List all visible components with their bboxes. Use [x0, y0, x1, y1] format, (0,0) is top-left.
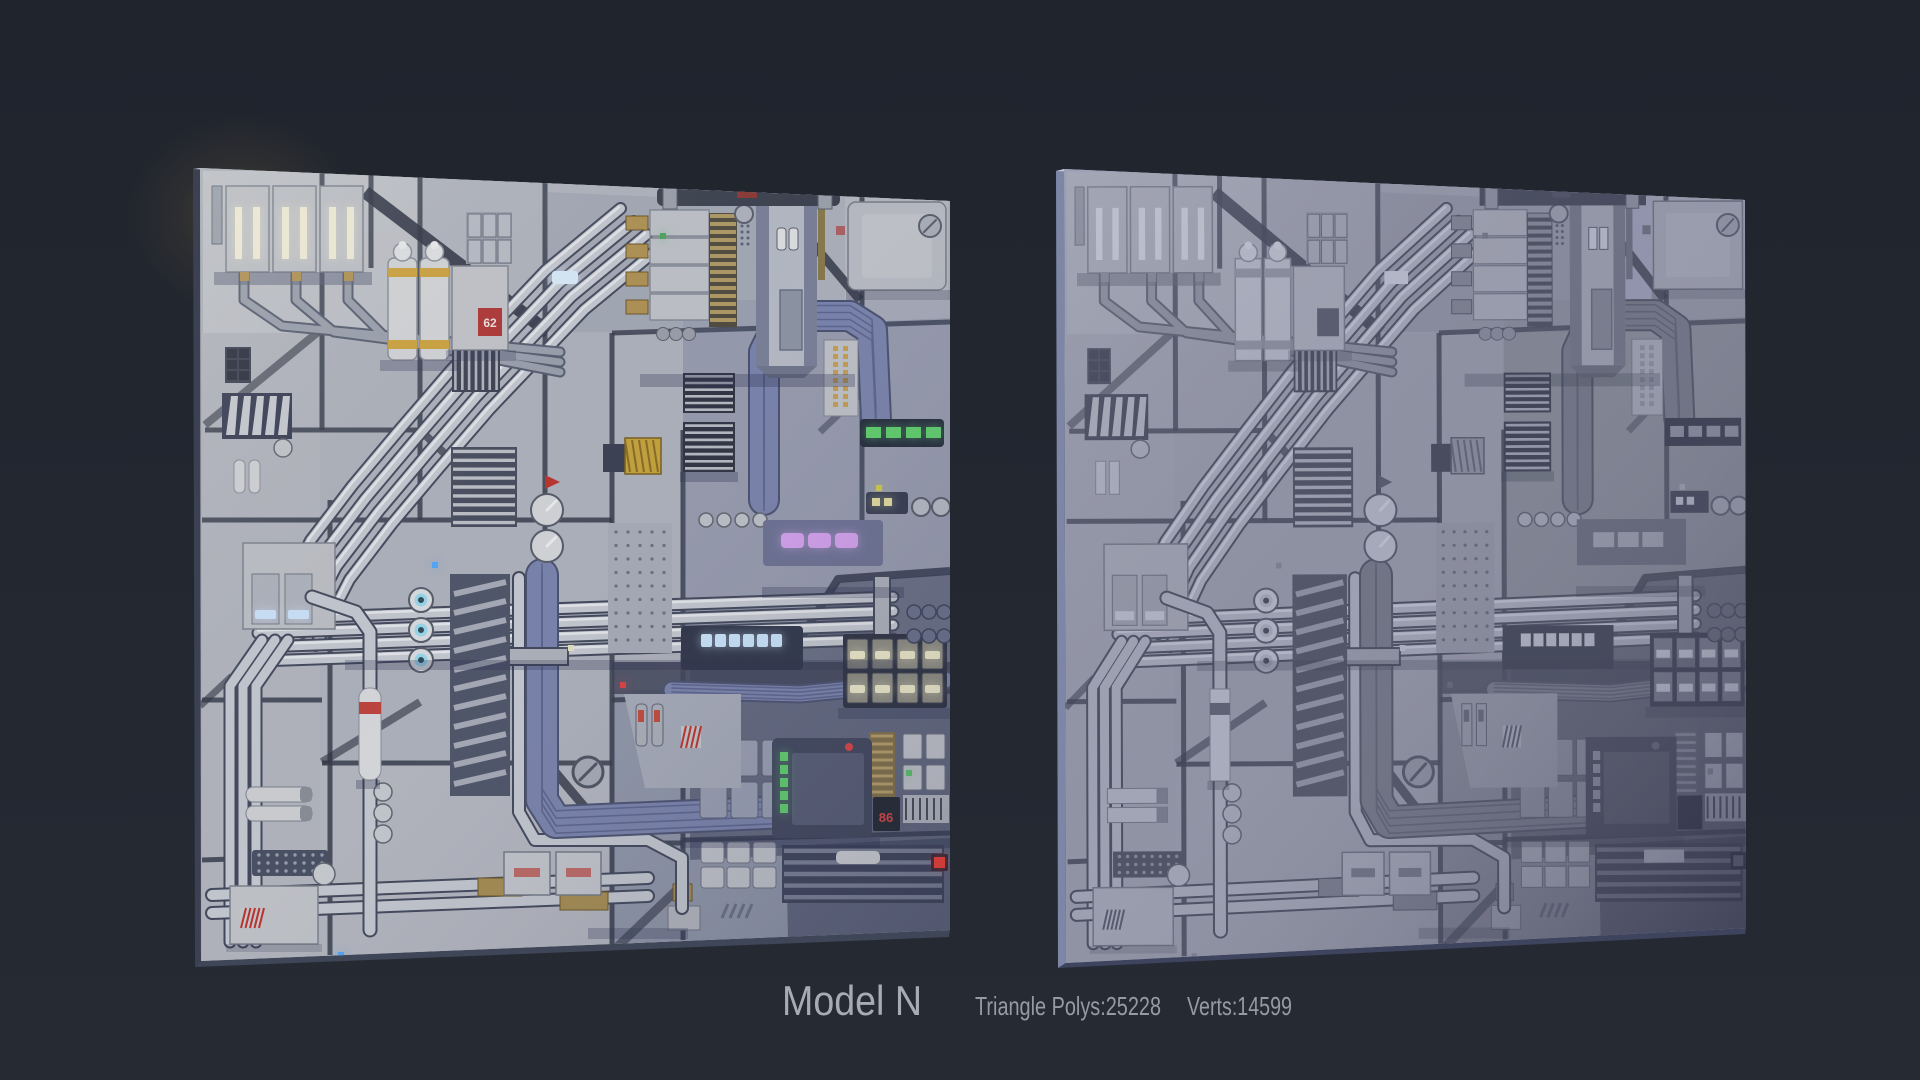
svg-text:Model N: Model N	[782, 977, 922, 1024]
svg-text:Verts:14599: Verts:14599	[1187, 991, 1292, 1021]
svg-text:Triangle Polys:25228: Triangle Polys:25228	[975, 991, 1161, 1021]
